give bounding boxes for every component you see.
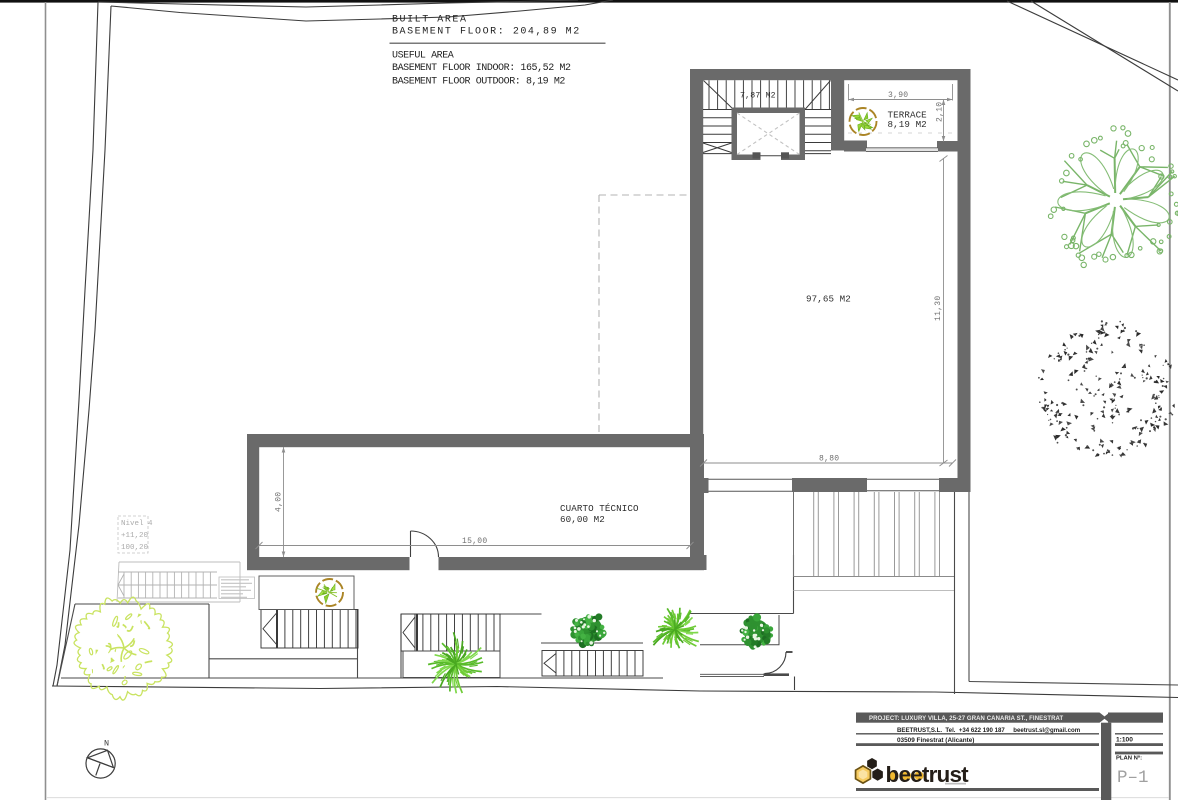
svg-text:BUILT AREA: BUILT AREA [392, 15, 468, 26]
svg-text:CUARTO TÉCNICO: CUARTO TÉCNICO [560, 503, 639, 514]
svg-text:8,19 M2: 8,19 M2 [888, 119, 927, 130]
svg-text:USEFUL AREA: USEFUL AREA [392, 51, 454, 62]
svg-text:BASEMENT FLOOR INDOOR: 165,52: BASEMENT FLOOR INDOOR: 165,52 M2 [392, 63, 571, 74]
svg-text:P–1: P–1 [1117, 768, 1149, 788]
svg-text:BASEMENT FLOOR OUTDOOR: 8,19 M: BASEMENT FLOOR OUTDOOR: 8,19 M2 [392, 77, 565, 88]
svg-text:4,00: 4,00 [275, 492, 284, 512]
svg-text:PLAN Nº:: PLAN Nº: [1116, 755, 1142, 761]
svg-text:BASEMENT FLOOR: 204,89 M2: BASEMENT FLOOR: 204,89 M2 [392, 27, 581, 38]
svg-text:15,00: 15,00 [462, 537, 488, 546]
svg-text:2,10: 2,10 [936, 102, 945, 122]
svg-text:7,87 M2: 7,87 M2 [740, 92, 776, 101]
svg-text:03509 Finestrat (Alicante): 03509 Finestrat (Alicante) [897, 737, 974, 744]
svg-text:97,65 M2: 97,65 M2 [806, 294, 851, 305]
svg-text:1:100: 1:100 [1116, 737, 1133, 744]
svg-text:Nivel 4: Nivel 4 [121, 520, 153, 528]
svg-text:+11,20: +11,20 [121, 532, 149, 540]
svg-text:100,20: 100,20 [121, 544, 149, 552]
svg-text:3,90: 3,90 [888, 91, 908, 100]
svg-text:BEETRUST,S.L. Tel. +34 622 1: BEETRUST,S.L. Tel. +34 622 190 187 beetr… [897, 727, 1081, 734]
svg-text:N: N [104, 739, 109, 749]
svg-text:8,80: 8,80 [819, 455, 839, 464]
svg-text:PROJECT: LUXURY VILLA, 25-27 G: PROJECT: LUXURY VILLA, 25-27 GRAN CANARI… [869, 716, 1064, 722]
svg-text:11,30: 11,30 [934, 295, 943, 321]
svg-text:60,00 M2: 60,00 M2 [560, 514, 605, 525]
